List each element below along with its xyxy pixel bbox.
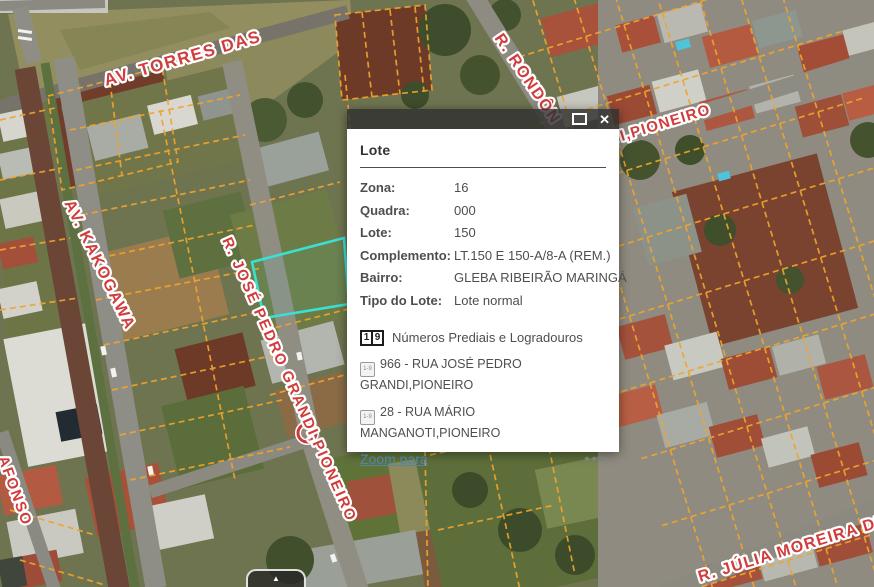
zoom-para-link[interactable]: Zoom para <box>360 451 428 467</box>
popup-body: Lote Zona: 16 Quadra: 000 Lote: 150 Comp… <box>347 129 619 452</box>
caret-up-icon: ▲ <box>272 575 280 583</box>
popup-menu-ellipsis[interactable]: ••• <box>584 451 606 468</box>
field-row-lote: Lote: 150 <box>360 225 606 241</box>
field-row-zona: Zona: 16 <box>360 180 606 196</box>
popup-title: Lote <box>360 142 606 158</box>
field-row-quadra: Quadra: 000 <box>360 203 606 219</box>
address-badge-icon: 1-9 <box>360 410 375 425</box>
maximize-button[interactable] <box>572 113 587 125</box>
maximize-icon <box>572 113 587 125</box>
field-row-tipo: Tipo do Lote: Lote normal <box>360 293 606 309</box>
field-row-bairro: Bairro: GLEBA RIBEIRÃO MARINGÁ <box>360 270 606 286</box>
address-item: 1-928 - RUA MÁRIO MANGANOTI,PIONEIRO <box>360 404 606 443</box>
related-section-title: Números Prediais e Logradouros <box>392 330 583 345</box>
field-row-complemento: Complemento: LT.150 E 150-A/8-A (REM.) <box>360 248 606 264</box>
attribution-toggle[interactable]: ▲ <box>246 569 306 587</box>
popup-divider <box>360 167 606 168</box>
close-button[interactable]: ✕ <box>599 113 610 126</box>
popup-titlebar: ✕ <box>347 109 619 129</box>
popup-footer: Zoom para ••• <box>360 443 606 468</box>
house-numbers-icon: 19 <box>360 330 384 346</box>
lote-popup: ✕ Lote Zona: 16 Quadra: 000 Lote: 150 Co… <box>347 109 619 452</box>
related-section: 19 Números Prediais e Logradouros 1-9966… <box>360 330 606 443</box>
map-viewport: AV. TORRES DAS R. RONDÔN TI,PIONEIRO AV.… <box>0 0 874 587</box>
address-badge-icon: 1-9 <box>360 362 375 377</box>
address-item: 1-9966 - RUA JOSÉ PEDRO GRANDI,PIONEIRO <box>360 356 606 395</box>
